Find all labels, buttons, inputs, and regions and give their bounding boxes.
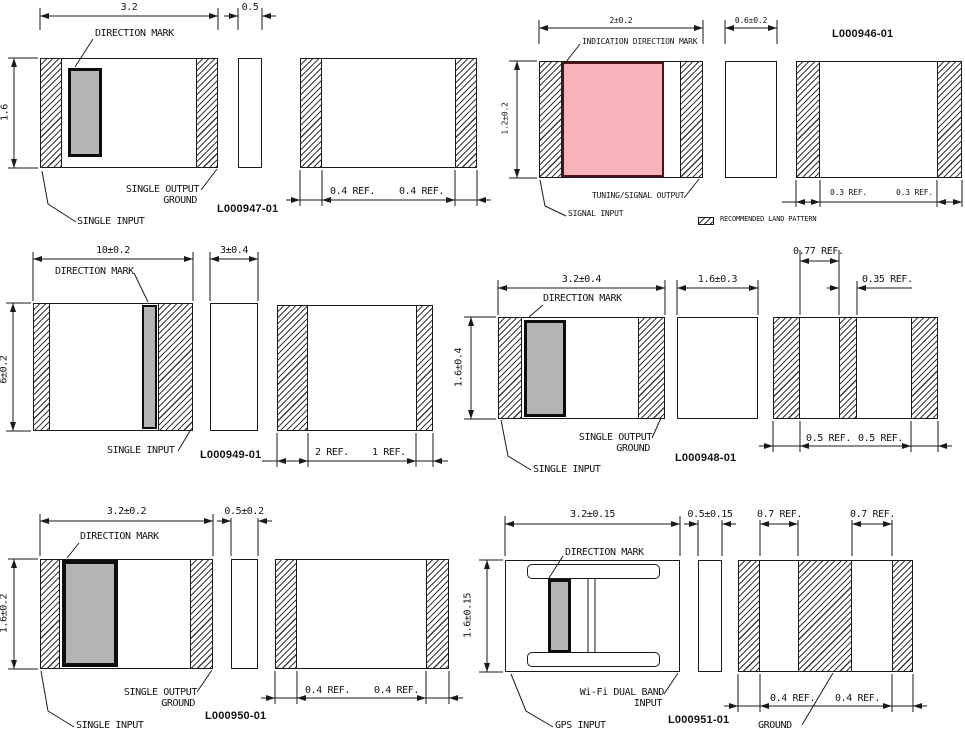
- d947-land-dim-2: 0.4 REF.: [399, 186, 444, 197]
- d951-side-dim: 0.5±0.15: [683, 509, 737, 520]
- d947-land-pad-left: [300, 58, 322, 168]
- d949-land-dim-1: 2 REF.: [315, 447, 349, 458]
- d950-land-dim-1: 0.4 REF.: [305, 685, 350, 696]
- d946-height-dim: 1.2±0.2: [502, 101, 511, 135]
- d948-output-label-line1: SINGLE OUTPUT: [558, 432, 652, 443]
- d946-land-pad-left: [796, 61, 820, 178]
- legend-hatch-swatch: [698, 217, 714, 225]
- d949-height-dim: 6±0.2: [0, 355, 10, 385]
- d947-pad-left: [40, 58, 62, 168]
- d948-direction-mark-label: DIRECTION MARK: [543, 293, 622, 304]
- d949-land-dim-2: 1 REF.: [372, 447, 406, 458]
- d948-land-top-dim-2: 0.35 REF.: [862, 274, 913, 285]
- d948-pad-left: [498, 317, 522, 419]
- d947-input-label: SINGLE INPUT: [77, 216, 144, 227]
- d950-height-dim: 1.6±0.2: [0, 593, 10, 635]
- legend-label: RECOMMENDED LAND PATTERN: [720, 216, 816, 224]
- d950-direction-mark: [62, 560, 118, 667]
- d946-land-dim-2: 0.3 REF.: [896, 189, 933, 198]
- d951-land-top-dim-1: 0.7 REF.: [757, 509, 802, 520]
- d951-input-label: GPS INPUT: [555, 720, 606, 731]
- d947-output-label-line2: GROUND: [104, 195, 197, 206]
- d951-land-top-dim-2: 0.7 REF.: [850, 509, 895, 520]
- d950-direction-mark-label: DIRECTION MARK: [80, 531, 159, 542]
- d947-part-number: L000947-01: [217, 203, 278, 215]
- d949-input-label: SINGLE INPUT: [107, 445, 174, 456]
- d946-indication-direction-mark: [562, 62, 664, 177]
- d951-output-label-line2: INPUT: [574, 698, 662, 709]
- d948-height-dim: 1.6±0.4: [454, 347, 465, 389]
- d948-land-top-dim-1: 0.77 REF.: [793, 246, 844, 257]
- d951-direction-mark: [548, 579, 571, 653]
- d951-inner-top-bar: [527, 564, 660, 579]
- d946-output-label: TUNING/SIGNAL OUTPUT: [592, 192, 684, 201]
- d949-side-view: [210, 303, 258, 431]
- d951-land-dim-1: 0.4 REF.: [770, 693, 815, 704]
- d947-width-dim: 3.2: [40, 2, 218, 13]
- d947-land-pad-right: [455, 58, 477, 168]
- d948-pad-right: [638, 317, 665, 419]
- d946-side-view: [725, 61, 777, 178]
- d948-land-dim-1: 0.5 REF.: [806, 433, 851, 444]
- d950-land-pad-left: [275, 559, 297, 669]
- d946-indication-mark-label: INDICATION DIRECTION MARK: [582, 38, 697, 47]
- d947-side-dim: 0.5: [238, 2, 262, 13]
- d950-width-dim: 3.2±0.2: [40, 506, 213, 517]
- d946-land-dim-1: 0.3 REF.: [830, 189, 867, 198]
- d950-land-pad-right: [426, 559, 449, 669]
- d948-land-dim-2: 0.5 REF.: [858, 433, 903, 444]
- d951-side-view: [698, 560, 722, 672]
- d950-side-dim: 0.5±0.2: [223, 506, 265, 517]
- d949-land-pad-left: [277, 305, 308, 431]
- d949-part-number: L000949-01: [200, 449, 261, 461]
- d951-output-label-line1: Wi-Fi DUAL BAND: [574, 687, 664, 698]
- d950-part-number: L000950-01: [205, 710, 266, 722]
- d950-output-label-line1: SINGLE OUTPUT: [103, 687, 197, 698]
- d950-input-label: SINGLE INPUT: [76, 720, 143, 731]
- d947-land-pattern: [300, 58, 477, 168]
- d948-part-number: L000948-01: [675, 452, 736, 464]
- d946-land-pad-right: [937, 61, 962, 178]
- d950-pad-left: [40, 559, 60, 669]
- d951-land-pad-right: [892, 560, 913, 672]
- d951-land-pad-ground: [798, 560, 852, 672]
- d946-width-dim: 2±0.2: [539, 17, 703, 26]
- d950-land-pattern: [275, 559, 449, 669]
- d950-output-label-line2: GROUND: [103, 698, 195, 709]
- d948-land-pad-left: [773, 317, 800, 419]
- d951-ground-label: GROUND: [758, 720, 792, 731]
- d951-land-dim-2: 0.4 REF.: [835, 693, 880, 704]
- d946-side-dim: 0.6±0.2: [725, 17, 777, 26]
- d950-side-view: [231, 559, 258, 669]
- d948-direction-mark: [524, 320, 566, 417]
- d949-pad-right: [158, 303, 193, 431]
- d950-land-dim-2: 0.4 REF.: [374, 685, 419, 696]
- d947-output-label-line1: SINGLE OUTPUT: [104, 184, 199, 195]
- d948-land-pad-center: [839, 317, 857, 419]
- d950-pad-right: [190, 559, 213, 669]
- d948-side-view: [677, 317, 758, 419]
- d949-width-dim: 10±0.2: [33, 245, 193, 256]
- d949-pad-left: [33, 303, 50, 431]
- d947-body: [40, 58, 218, 168]
- d951-width-dim: 3.2±0.15: [505, 509, 680, 520]
- drawing-sheet: 3.2 0.5 1.6 DIRECTION MARK SINGLE OUTPUT…: [0, 0, 965, 737]
- d949-land-pad-right: [416, 305, 433, 431]
- d947-direction-mark: [68, 68, 102, 157]
- d948-width-dim: 3.2±0.4: [498, 274, 665, 285]
- d946-pad-right: [680, 61, 703, 178]
- d949-side-dim: 3±0.4: [210, 245, 258, 256]
- d951-inner-bottom-bar: [527, 652, 660, 667]
- d946-input-label: SIGNAL INPUT: [568, 210, 623, 219]
- d951-height-dim: 1.6±0.15: [463, 592, 474, 640]
- d947-land-dim-1: 0.4 REF.: [330, 186, 375, 197]
- d947-height-dim: 1.6: [0, 103, 11, 123]
- d946-pad-left: [539, 61, 562, 178]
- d948-input-label: SINGLE INPUT: [533, 464, 600, 475]
- d948-side-dim: 1.6±0.3: [677, 274, 758, 285]
- d947-side-view: [238, 58, 262, 168]
- d949-direction-mark: [142, 305, 157, 429]
- d951-part-number: L000951-01: [668, 714, 729, 726]
- d946-part-number: L000946-01: [832, 28, 893, 40]
- d951-direction-mark-label: DIRECTION MARK: [565, 547, 644, 558]
- d949-direction-mark-label: DIRECTION MARK: [55, 266, 134, 277]
- d948-output-label-line2: GROUND: [558, 443, 650, 454]
- d948-land-pad-right: [911, 317, 938, 419]
- d951-land-pad-left: [738, 560, 760, 672]
- d947-pad-right: [196, 58, 218, 168]
- d947-direction-mark-label: DIRECTION MARK: [95, 28, 174, 39]
